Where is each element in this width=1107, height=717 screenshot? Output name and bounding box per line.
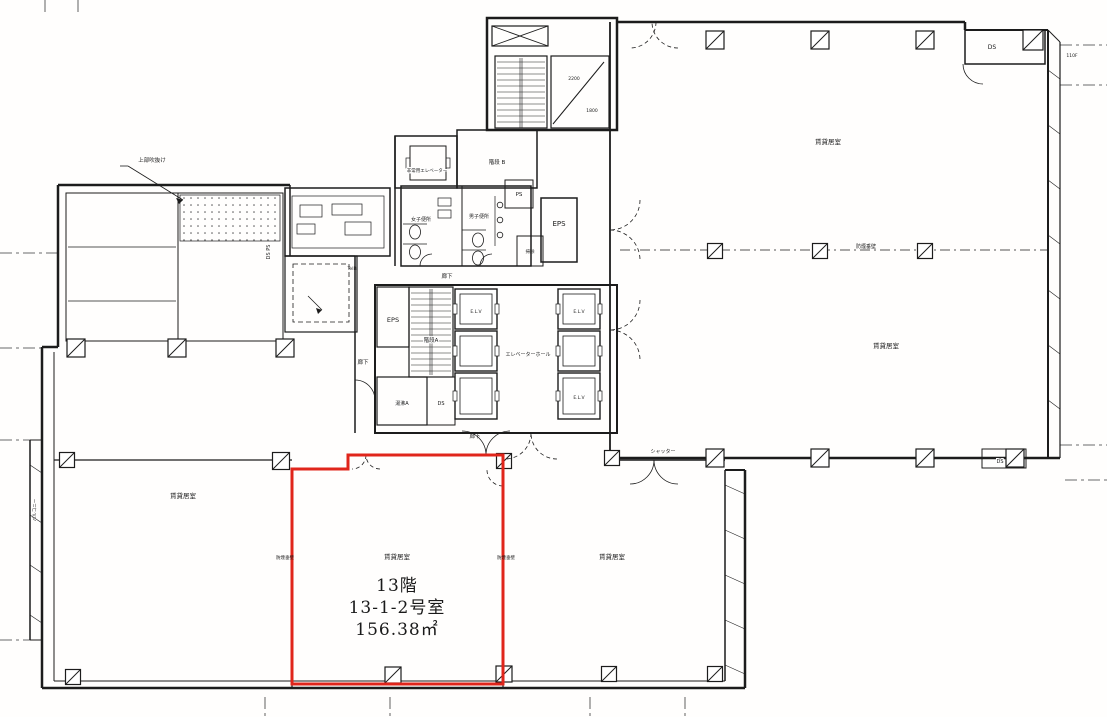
door-swing-arc <box>610 330 640 360</box>
label-yuwakashi: 湯沸A <box>395 400 409 407</box>
label-rdf: 110F <box>1066 53 1078 59</box>
room-rental-lower-left: 賃貸居室 <box>170 491 197 500</box>
room-rental-upper-1: 賃貸居室 <box>815 137 842 146</box>
label-ds-ps-left: DS PS <box>266 245 272 260</box>
label-cleaning: 掃除 <box>526 248 535 255</box>
highlight-floor-label: 13階 <box>376 576 418 596</box>
door-swing-arc <box>486 431 510 455</box>
door-swing-arc <box>610 230 640 260</box>
door-swing-arc <box>420 254 432 266</box>
door-swings <box>352 22 983 486</box>
elevator-shaft <box>455 373 497 419</box>
label-ds-core: DS <box>437 401 444 407</box>
door-swing-arc <box>963 64 983 84</box>
label-corridor-2: 廊下 <box>357 358 369 366</box>
label-stairs-a: 階段A <box>424 336 439 344</box>
door-swing-arc <box>480 254 492 266</box>
door-swing-arc <box>610 300 640 330</box>
door-swing-arc <box>531 433 557 459</box>
dim-2200: 2200 <box>568 76 580 82</box>
label-mens-toilet: 男子便所 <box>469 213 489 220</box>
door-swing-arc <box>652 22 678 48</box>
label-corridor-3: 廊下 <box>469 432 481 440</box>
fixtures <box>297 158 503 265</box>
door-swing-arc <box>630 460 654 484</box>
label-corridor-1: 廊下 <box>441 272 453 280</box>
label-elevator-hall: エレベーターホール <box>505 351 550 358</box>
grid-centerlines <box>0 0 1107 717</box>
door-swing-arc <box>352 455 366 469</box>
label-smoke-barrier-2: 防煙垂壁 <box>276 554 294 561</box>
label-womens-toilet: 女子便所 <box>411 216 431 223</box>
door-swing-arc <box>610 200 640 230</box>
floor-plan-page: 13階13-1-2号室156.38㎡賃貸居室賃貸居室賃貸居室賃貸居室賃貸居室防煙… <box>0 0 1107 717</box>
door-swing-arc <box>487 470 503 486</box>
label-elv-1: E.L.V <box>470 309 482 315</box>
labels-layer: 13階13-1-2号室156.38㎡賃貸居室賃貸居室賃貸居室賃貸居室賃貸居室防煙… <box>32 44 1078 640</box>
room-rental-lower-right: 賃貸居室 <box>599 552 626 561</box>
label-ds-top-right: DS <box>988 44 997 51</box>
room-rental-highlight: 賃貸居室 <box>384 552 411 561</box>
elevator-shaft <box>558 289 600 329</box>
label-eps-2: EPS <box>387 316 399 324</box>
door-swing-arc <box>355 380 375 400</box>
highlight-room-label: 13-1-2号室 <box>349 598 446 618</box>
elevator-shaft <box>455 331 497 371</box>
label-emergency-elevator: 非常用エレベーター <box>407 167 448 174</box>
elevator-shaft <box>455 289 497 329</box>
label-ds-lower-right: DS <box>996 459 1003 465</box>
door-swing-arc <box>366 455 380 469</box>
highlight-area-label: 156.38㎡ <box>355 620 438 640</box>
floor-plan-svg: 13階13-1-2号室156.38㎡賃貸居室賃貸居室賃貸居室賃貸居室賃貸居室防煙… <box>0 0 1107 717</box>
highlighted-room-outline <box>292 455 503 684</box>
dim-1800: 1800 <box>586 108 598 114</box>
room-rental-upper-2: 賃貸居室 <box>873 341 900 350</box>
label-ps: PS <box>516 192 523 198</box>
label-balcony: バルコニー <box>32 498 38 521</box>
label-telb: TelB <box>346 266 356 272</box>
label-shutter: シャッター <box>650 448 675 455</box>
elevator-shaft <box>558 331 600 371</box>
label-elv-3: E.L.V <box>573 395 585 401</box>
label-smoke-barrier-1: 防煙垂壁 <box>856 243 876 250</box>
label-stairs-b: 階段 B <box>489 158 506 166</box>
label-elv-2: E.L.V <box>573 309 585 315</box>
label-smoke-barrier-3: 防煙垂壁 <box>497 554 515 561</box>
door-swing-arc <box>654 460 678 484</box>
label-void-annotation: 上部吹抜け <box>138 156 166 164</box>
label-eps-1: EPS <box>552 220 566 228</box>
